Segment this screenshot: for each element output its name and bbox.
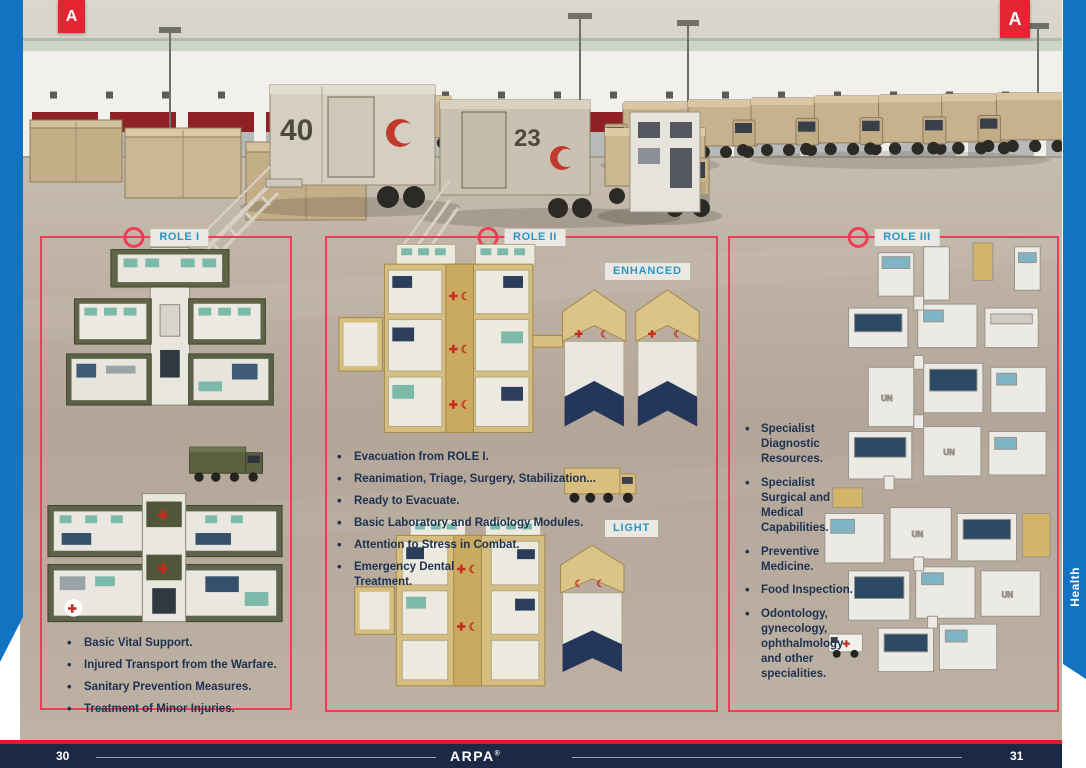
health-tab-label: Health — [1068, 567, 1082, 607]
bullet-item: Basic Vital Support. — [62, 636, 290, 651]
footer-divider-line — [96, 757, 436, 758]
red-cross-icon: ✚ — [157, 508, 169, 523]
bullet-item: Preventive Medicine. — [744, 545, 854, 575]
registered-mark: ® — [495, 750, 500, 757]
red-cross-icon: ✚ — [457, 621, 466, 633]
bullet-item: Attention to Stress in Combat. — [332, 538, 622, 553]
un-module-chain: UN UN UN UN — [825, 243, 1050, 672]
arpa-wordmark: ARPA — [450, 748, 495, 764]
brand-badge-icon: A — [58, 0, 85, 33]
red-cross-icon: ✚ — [574, 329, 583, 340]
bullet-item: Evacuation from ROLE I. — [332, 450, 622, 465]
brand-badge-icon: A — [1000, 0, 1030, 38]
bullet-item: Basic Laboratory and Radiology Modules. — [332, 516, 622, 531]
red-cross-icon: ✚ — [648, 329, 657, 340]
footer-bar: 30 ARPA® 31 — [0, 740, 1062, 768]
brand-badge-letter: A — [1009, 9, 1022, 30]
container-number-23: 23 — [514, 125, 541, 152]
red-crescent-icon: ☾ — [461, 344, 471, 356]
red-cross-icon: ✚ — [68, 604, 77, 616]
red-crescent-icon: ☾ — [461, 291, 471, 303]
bullet-item: Emergency Dental Treatment. — [332, 560, 504, 590]
enhanced-badge: ENHANCED — [605, 263, 690, 280]
role2-panel: ROLE II ENHANCED LIGHT — [325, 236, 718, 712]
red-crescent-icon: ☾ — [673, 329, 682, 340]
red-cross-icon: ✚ — [449, 400, 458, 412]
bullet-item: Sanitary Prevention Measures. — [62, 680, 290, 695]
un-label: UN — [943, 448, 955, 457]
role2-bullet-list: Evacuation from ROLE I. Reanimation, Tri… — [332, 450, 622, 597]
red-cross-icon: ✚ — [449, 291, 458, 303]
footer-divider-line — [572, 757, 962, 758]
bullet-item: Specialist Diagnostic Resources. — [744, 422, 854, 467]
bullet-item: Reanimation, Triage, Surgery, Stabilizat… — [332, 472, 622, 487]
red-cross-icon: ✚ — [449, 344, 458, 356]
un-label: UN — [912, 530, 924, 539]
un-label: UN — [881, 394, 893, 403]
bullet-item: Treatment of Minor Injuries. — [62, 702, 290, 717]
red-crescent-icon: ☾ — [461, 400, 471, 412]
brochure-spread: 40 23 — [0, 0, 1086, 768]
brand-badge-letter: A — [66, 8, 78, 26]
role3-bullet-list: Specialist Diagnostic Resources. Special… — [744, 422, 854, 691]
left-page-number: 30 — [56, 749, 69, 763]
bullet-item: Odontology, gynecology, ophthalmology an… — [744, 607, 854, 682]
bullet-item: Injured Transport from the Warfare. — [62, 658, 290, 673]
tent-unit: ✚ ☾ — [636, 290, 699, 427]
un-label: UN — [1002, 590, 1014, 599]
tent-unit: ✚ ☾ — [563, 290, 626, 427]
red-cross-icon: ✚ — [157, 561, 169, 576]
role1-bullet-list: Basic Vital Support. Injured Transport f… — [62, 636, 290, 724]
red-crescent-icon: ☾ — [469, 621, 479, 633]
bullet-item: Food Inspection. — [744, 583, 854, 598]
arpa-logo: ARPA® — [450, 748, 500, 764]
role1-panel: ROLE I — [40, 236, 292, 710]
left-edge-ribbon — [0, 0, 23, 662]
health-section-tab: Health — [1063, 0, 1086, 679]
red-crescent-icon: ☾ — [600, 329, 609, 340]
military-truck — [190, 447, 263, 482]
bullet-item: Specialist Surgical and Medical Capabili… — [744, 476, 854, 536]
role3-panel: ROLE III UN UN — [728, 236, 1059, 712]
right-page-number: 31 — [1010, 749, 1023, 763]
bullet-item: Ready to Evacuate. — [332, 494, 622, 509]
container-number-40: 40 — [280, 114, 313, 147]
